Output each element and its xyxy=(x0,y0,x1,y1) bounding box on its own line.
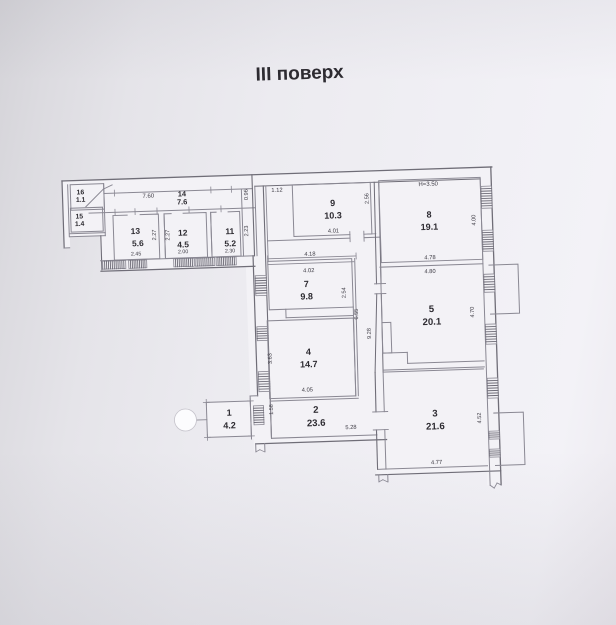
svg-text:4.05: 4.05 xyxy=(302,387,313,393)
svg-text:16: 16 xyxy=(77,189,85,196)
svg-text:8: 8 xyxy=(426,209,431,219)
svg-text:2.23: 2.23 xyxy=(244,225,250,236)
svg-text:1: 1 xyxy=(226,408,231,418)
svg-text:4.5: 4.5 xyxy=(177,239,189,249)
svg-text:14.7: 14.7 xyxy=(300,359,318,370)
svg-text:2.56: 2.56 xyxy=(364,193,370,204)
svg-text:10.3: 10.3 xyxy=(324,210,342,221)
svg-text:7.6: 7.6 xyxy=(177,197,188,206)
svg-text:6.55: 6.55 xyxy=(354,309,360,320)
svg-text:23.6: 23.6 xyxy=(307,418,326,430)
svg-text:III поверх: III поверх xyxy=(255,62,344,86)
svg-text:2: 2 xyxy=(313,405,319,416)
svg-text:7: 7 xyxy=(304,279,309,289)
svg-text:1.4: 1.4 xyxy=(75,221,85,228)
svg-text:11: 11 xyxy=(225,226,235,236)
svg-text:3: 3 xyxy=(432,408,438,419)
svg-text:5.2: 5.2 xyxy=(224,238,236,248)
svg-text:4.77: 4.77 xyxy=(431,460,442,466)
svg-text:3.63: 3.63 xyxy=(268,353,274,364)
svg-text:4.70: 4.70 xyxy=(470,307,476,318)
svg-text:2.27: 2.27 xyxy=(165,230,171,241)
svg-text:4.78: 4.78 xyxy=(424,255,435,261)
svg-text:2.27: 2.27 xyxy=(152,229,158,240)
svg-text:5.28: 5.28 xyxy=(345,425,356,431)
svg-text:4.18: 4.18 xyxy=(304,252,315,258)
svg-text:9.28: 9.28 xyxy=(367,328,373,339)
svg-text:12: 12 xyxy=(178,227,188,237)
svg-text:2.30: 2.30 xyxy=(225,248,236,254)
svg-text:4.01: 4.01 xyxy=(328,228,339,234)
svg-text:4: 4 xyxy=(306,347,311,357)
svg-text:4.00: 4.00 xyxy=(471,215,477,226)
svg-text:15: 15 xyxy=(75,213,83,220)
svg-text:19.1: 19.1 xyxy=(420,222,438,233)
svg-text:0.96: 0.96 xyxy=(244,189,250,200)
svg-text:2.45: 2.45 xyxy=(131,251,142,257)
svg-text:H=3.50: H=3.50 xyxy=(418,182,438,189)
svg-text:2.54: 2.54 xyxy=(341,287,347,298)
svg-text:1.58: 1.58 xyxy=(269,404,275,415)
svg-text:1.12: 1.12 xyxy=(271,188,282,194)
svg-text:7.60: 7.60 xyxy=(142,193,155,199)
svg-text:21.6: 21.6 xyxy=(426,421,445,433)
svg-text:4.02: 4.02 xyxy=(303,268,314,274)
svg-text:9: 9 xyxy=(330,198,335,208)
svg-text:4.2: 4.2 xyxy=(223,420,236,430)
svg-text:20.1: 20.1 xyxy=(422,316,442,328)
svg-text:5: 5 xyxy=(429,304,435,315)
svg-text:5.6: 5.6 xyxy=(132,238,144,248)
svg-text:1.1: 1.1 xyxy=(76,197,86,204)
svg-text:4.52: 4.52 xyxy=(477,412,483,423)
svg-text:9.8: 9.8 xyxy=(300,291,313,301)
svg-text:2.00: 2.00 xyxy=(178,249,189,255)
svg-text:4.80: 4.80 xyxy=(424,269,435,275)
svg-text:13: 13 xyxy=(131,226,141,236)
